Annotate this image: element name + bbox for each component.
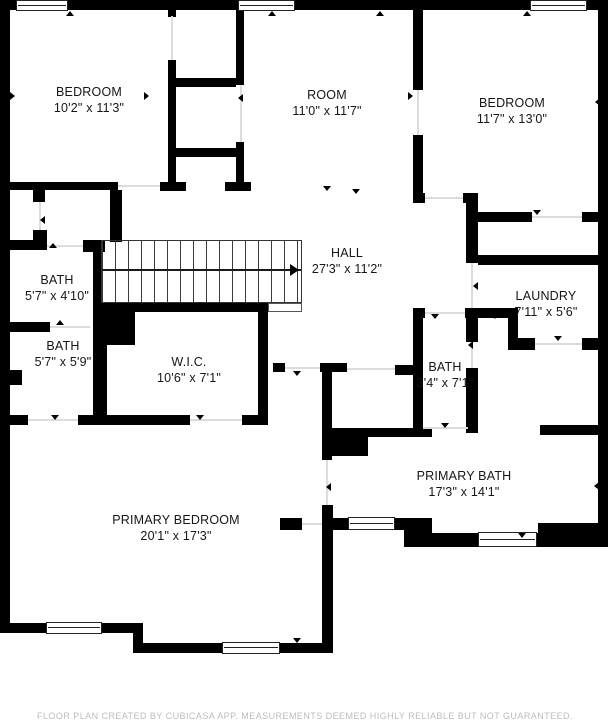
wall <box>538 523 603 547</box>
room-dimensions: 10'2" x 11'3" <box>54 100 124 116</box>
door-marker <box>554 336 562 341</box>
wall <box>176 148 244 157</box>
room-name: ROOM <box>292 87 361 103</box>
room-name: PRIMARY BEDROOM <box>112 512 240 528</box>
room-dimensions: 3'4" x 7'1" <box>417 375 474 391</box>
wall <box>413 10 423 90</box>
room-dimensions: 7'11" x 5'6" <box>514 304 577 320</box>
wall <box>168 60 176 185</box>
room-label-primary-bath: PRIMARY BATH 17'3" x 14'1" <box>417 468 512 500</box>
window <box>238 0 295 11</box>
room-label-hall: HALL 27'3" x 11'2" <box>312 245 382 277</box>
floor-plan: BEDROOM 10'2" x 11'3" ROOM 11'0" x 11'7"… <box>0 0 610 726</box>
door-marker <box>2 284 7 292</box>
wall <box>413 308 425 318</box>
door-marker <box>40 216 45 224</box>
wall <box>78 415 190 425</box>
window <box>530 0 587 11</box>
door-marker <box>431 314 439 319</box>
room-name: HALL <box>312 245 382 261</box>
door-marker <box>594 482 599 490</box>
door-marker <box>49 243 57 248</box>
room-name: W.I.C. <box>157 354 221 370</box>
door-marker <box>218 304 226 309</box>
room-label-bedroom-top-left: BEDROOM 10'2" x 11'3" <box>54 84 124 116</box>
door-marker <box>51 415 59 420</box>
room-dimensions: 5'7" x 5'9" <box>35 354 92 370</box>
door-marker <box>238 94 243 102</box>
window-marker <box>518 533 526 538</box>
wall <box>273 363 285 372</box>
wall <box>508 338 535 350</box>
door-marker <box>56 320 64 325</box>
door <box>347 368 395 370</box>
door <box>535 343 582 345</box>
wall <box>10 322 50 332</box>
wall <box>160 182 186 191</box>
room-dimensions: 11'0" x 11'7" <box>292 103 361 119</box>
window-marker <box>66 11 74 16</box>
wall <box>110 190 122 242</box>
wall <box>8 182 118 190</box>
room-label-wic: W.I.C. 10'6" x 7'1" <box>157 354 221 386</box>
room-name: BEDROOM <box>54 84 124 100</box>
wall <box>0 0 10 633</box>
room-dimensions: 5'7" x 4'10" <box>25 288 89 304</box>
door-marker <box>144 92 149 100</box>
wall <box>582 338 598 350</box>
wall <box>466 203 478 263</box>
door-marker <box>468 341 473 349</box>
room-label-room: ROOM 11'0" x 11'7" <box>292 87 361 119</box>
door-marker <box>473 282 478 290</box>
window <box>16 0 68 11</box>
wall <box>413 193 425 203</box>
wall <box>582 212 598 222</box>
room-dimensions: 27'3" x 11'2" <box>312 261 382 277</box>
wall <box>225 182 251 191</box>
wall <box>395 365 413 375</box>
room-dimensions: 20'1" x 17'3" <box>112 528 240 544</box>
wall <box>320 363 347 372</box>
room-name: PRIMARY BATH <box>417 468 512 484</box>
room-dimensions: 11'7" x 13'0" <box>477 111 547 127</box>
wall <box>33 190 45 202</box>
window-marker <box>376 11 384 16</box>
door <box>302 523 322 525</box>
opening-marker <box>323 186 331 191</box>
wall <box>404 533 478 547</box>
window <box>46 622 102 634</box>
wall <box>325 428 368 456</box>
window <box>222 642 280 654</box>
wall <box>322 518 348 530</box>
wall <box>478 212 532 222</box>
room-label-bedroom-top-right: BEDROOM 11'7" x 13'0" <box>477 95 547 127</box>
door-marker <box>196 415 204 420</box>
stair-landing <box>268 303 302 312</box>
room-name: BATH <box>25 272 89 288</box>
door-marker <box>408 92 413 100</box>
window-marker <box>523 11 531 16</box>
door-marker <box>491 314 499 319</box>
room-dimensions: 10'6" x 7'1" <box>157 370 221 386</box>
wall <box>236 10 244 85</box>
room-name: LAUNDRY <box>514 288 577 304</box>
wall <box>258 312 268 425</box>
room-name: BEDROOM <box>477 95 547 111</box>
staircase <box>101 240 302 303</box>
wall <box>8 0 608 10</box>
door <box>532 216 582 218</box>
door <box>171 16 173 60</box>
room-name: BATH <box>417 359 474 375</box>
wall <box>95 302 135 345</box>
door <box>285 367 320 369</box>
door-marker <box>293 638 301 643</box>
room-name: BATH <box>35 338 92 354</box>
door-marker <box>82 183 90 188</box>
door <box>425 197 463 199</box>
pocket-door <box>348 517 395 530</box>
door-marker <box>2 341 7 349</box>
door-marker <box>10 92 15 100</box>
room-label-laundry: LAUNDRY 7'11" x 5'6" <box>514 288 577 320</box>
wall <box>97 345 107 425</box>
disclaimer-text: FLOOR PLAN CREATED BY CUBICASA APP. MEAS… <box>0 711 610 721</box>
door-marker <box>326 483 331 491</box>
door <box>50 326 90 328</box>
wall <box>540 425 598 435</box>
wall <box>463 193 478 203</box>
wall <box>413 423 423 433</box>
door <box>118 185 160 187</box>
door-marker <box>554 258 562 263</box>
wall <box>598 0 608 547</box>
wall <box>280 518 302 530</box>
door-marker <box>595 98 600 106</box>
door-marker <box>293 371 301 376</box>
door-marker <box>94 373 99 381</box>
window-marker <box>268 11 276 16</box>
stair-arrow-icon <box>290 264 299 276</box>
stair-direction-line <box>102 269 301 271</box>
window <box>478 532 537 547</box>
wall <box>176 78 236 87</box>
room-label-bath-middle: BATH 3'4" x 7'1" <box>417 359 474 391</box>
wall <box>468 423 478 433</box>
wall <box>0 415 28 425</box>
wall <box>466 308 478 342</box>
wall <box>0 240 47 250</box>
wall <box>135 302 268 312</box>
room-dimensions: 17'3" x 14'1" <box>417 484 512 500</box>
opening-marker <box>352 189 360 194</box>
door-marker <box>441 423 449 428</box>
wall <box>478 255 598 265</box>
room-label-primary-bedroom: PRIMARY BEDROOM 20'1" x 17'3" <box>112 512 240 544</box>
door <box>417 90 419 135</box>
wall <box>10 370 22 385</box>
door-marker <box>94 282 99 290</box>
door-marker <box>533 210 541 215</box>
room-label-bath-lower: BATH 5'7" x 5'9" <box>35 338 92 370</box>
room-label-bath-upper: BATH 5'7" x 4'10" <box>25 272 89 304</box>
